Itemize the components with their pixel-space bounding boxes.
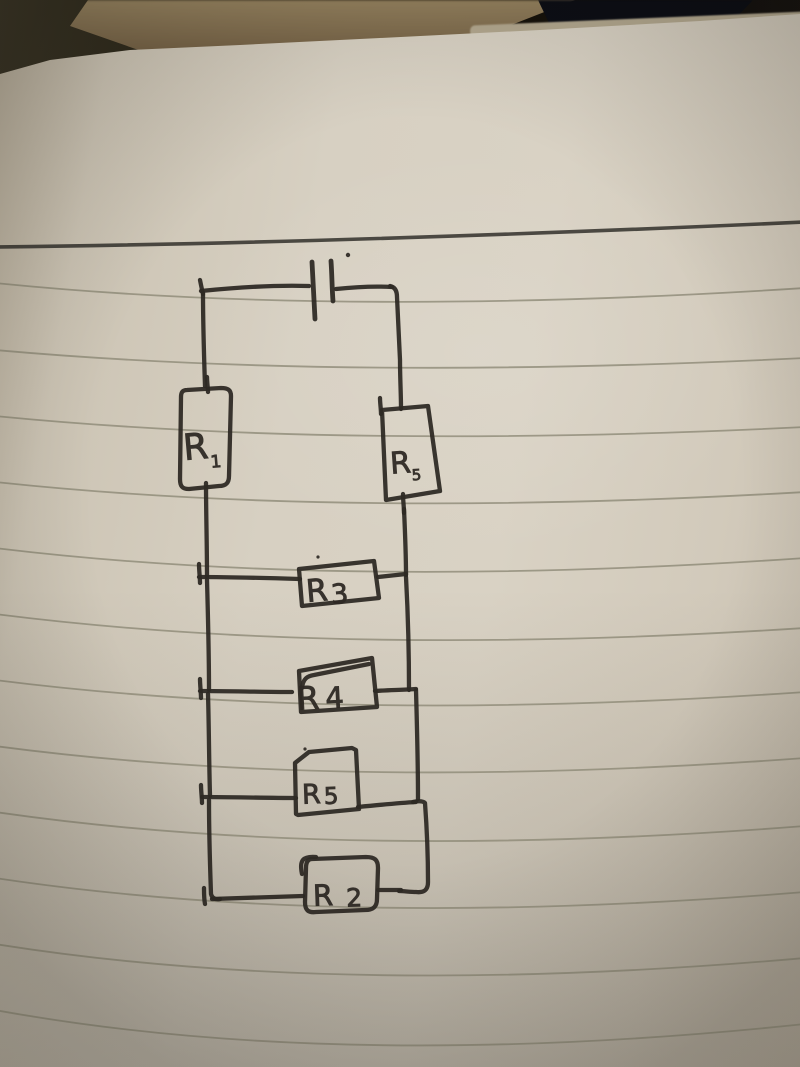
wire (204, 888, 205, 904)
label-letter: R (305, 572, 330, 610)
margin-line (0, 222, 800, 247)
resistor-label-r2: R2 (312, 877, 362, 914)
label-letter: R (181, 426, 209, 469)
ruled-line (0, 944, 800, 976)
wire (404, 509, 406, 575)
wire (208, 694, 210, 796)
wire (201, 785, 202, 803)
label-letter: R (312, 878, 333, 913)
label-subscript: 5 (323, 784, 339, 810)
ruled-line (0, 680, 800, 705)
resistor-label-r3: R3 (305, 571, 350, 613)
label-subscript: 1 (210, 452, 223, 473)
ruled-line (0, 746, 800, 772)
circuit-drawing: R1 R5 R3 R4 R5 R2 (0, 0, 800, 1067)
ruled-line (0, 416, 800, 436)
wire (201, 286, 309, 291)
label-letter: R (389, 445, 412, 481)
wire (199, 564, 200, 583)
wire (416, 690, 418, 799)
wire (358, 802, 416, 807)
wire (202, 797, 296, 798)
ruled-line (0, 548, 800, 572)
wire (200, 691, 292, 692)
battery-plate-long (312, 262, 315, 319)
wire (207, 580, 209, 690)
wire (199, 577, 300, 579)
ink-dot (346, 253, 350, 257)
ruled-line (0, 283, 800, 302)
wire (399, 801, 428, 892)
ruled-line (0, 812, 800, 841)
wire (375, 689, 416, 691)
ruled-line (0, 1010, 800, 1045)
wire (336, 287, 392, 289)
wire (390, 286, 401, 409)
ink-dot (316, 555, 319, 558)
ruled-line (0, 614, 800, 640)
ink-dot (303, 747, 306, 750)
battery-icon (312, 261, 333, 319)
ruled-line (0, 482, 800, 503)
wire (212, 896, 303, 899)
resistor-label-r5: R5 (301, 779, 338, 811)
wire (200, 679, 201, 698)
label-subscript: 3 (330, 578, 350, 610)
label-subscript: 4 (324, 680, 344, 715)
wire (206, 483, 207, 577)
wire (378, 574, 406, 577)
label-letter: R (301, 779, 321, 811)
resistor-label-r5-right: R5 (389, 445, 422, 486)
label-subscript: 2 (346, 883, 363, 913)
wire (406, 577, 409, 690)
wire (209, 800, 220, 899)
resistor-label-r1: R1 (181, 425, 222, 475)
notebook-photo: R1 R5 R3 R4 R5 R2 (0, 0, 800, 1067)
wire (203, 293, 205, 386)
battery-plate-short (331, 261, 333, 301)
label-subscript: 5 (411, 466, 422, 485)
label-letter: R (296, 679, 320, 718)
